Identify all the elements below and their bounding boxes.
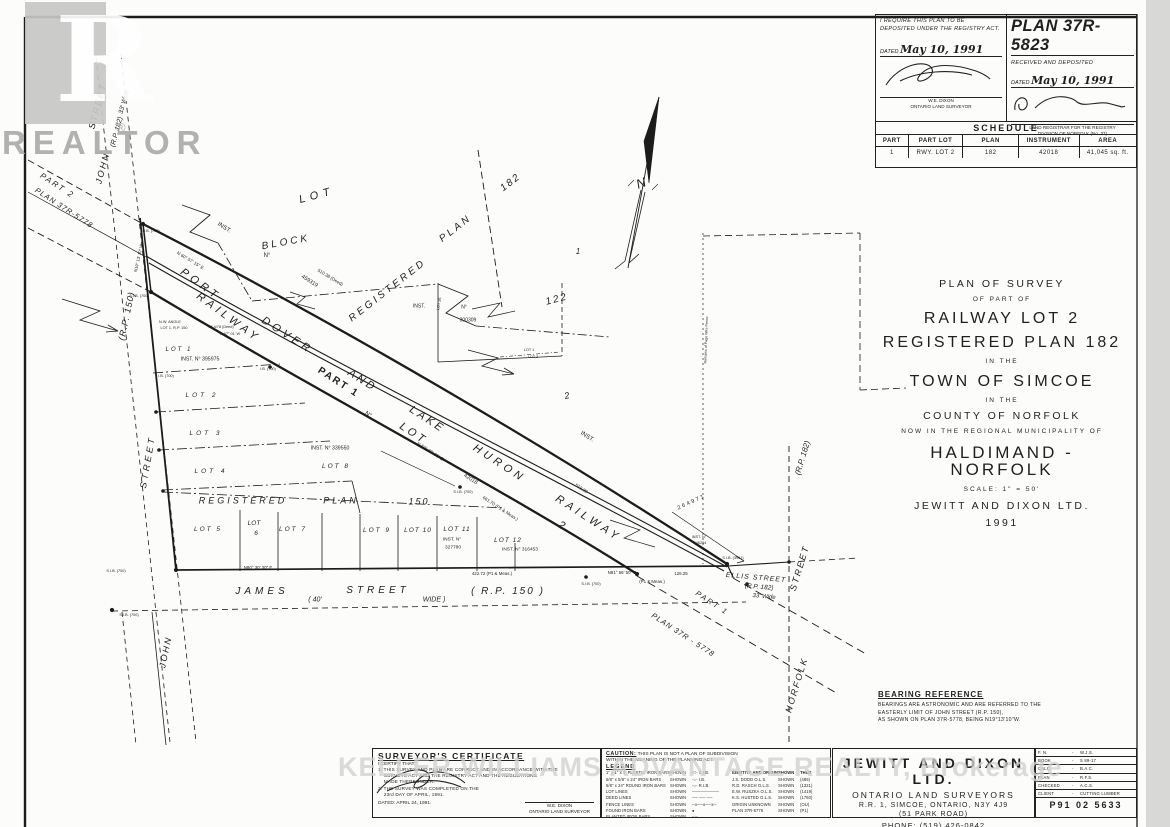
schedule-cell: 1	[876, 147, 909, 158]
map-label: INST. N° 316453	[502, 549, 538, 554]
company-address-line2: (51 PARK ROAD)	[833, 811, 1034, 818]
map-label: 300309	[460, 319, 477, 324]
map-label: N.W. ANGLE	[159, 321, 181, 325]
map-label: 246264	[694, 542, 707, 546]
schedule-cell: INSTRUMENT	[1019, 135, 1080, 147]
company-address-line1: R.R. 1, SIMCOE, ONTARIO, N3Y 4J9	[833, 802, 1034, 809]
map-label: LOT 5	[194, 527, 222, 534]
map-label: N81° 56' 50" E	[608, 571, 637, 575]
map-label: LOT 8	[322, 464, 350, 471]
survey-title-line: REGISTERED PLAN 182	[878, 335, 1126, 351]
map-label: I.B. (700)	[260, 368, 276, 372]
schedule-cell: PART	[876, 135, 909, 147]
info-cell: -	[1072, 766, 1080, 771]
survey-title-line: IN THE	[878, 359, 1126, 366]
map-label: INST.	[413, 305, 425, 310]
map-label: 6	[254, 531, 258, 538]
map-label: S.I.B. (3961)	[722, 557, 743, 561]
info-cell: -	[1072, 750, 1080, 755]
legend-cell: PLANTED IRON BARS	[606, 814, 670, 820]
company-subtitle: ONTARIO LAND SURVEYORS	[833, 790, 1034, 800]
survey-title-line: TOWN OF SIMCOE	[878, 374, 1126, 390]
schedule-cell: 42018	[1019, 147, 1080, 158]
survey-title-line: SCALE: 1" = 50'	[878, 487, 1126, 494]
schedule-data-row: 1RWY. LOT 21824201841,045 sq. ft.	[876, 147, 1136, 158]
dated-handwritten-date: May 10, 1991	[900, 43, 983, 56]
registrar-signature	[1011, 88, 1129, 118]
surveyor-role: ONTARIO LAND SURVEYOR	[880, 104, 1002, 110]
legend-row: PLANTED IRON BARSSHOWN-○-	[606, 814, 726, 820]
map-label: N80° 30' 30" E	[244, 566, 273, 570]
map-label: S.I.B. (700)	[119, 614, 138, 618]
bearing-reference-title: BEARING REFERENCE	[878, 690, 1128, 699]
legend-cell: SHOWN	[778, 808, 800, 814]
info-cell: A.C.S.	[1080, 783, 1134, 788]
schedule-table: SCHEDULE PARTPART LOTPLANINSTRUMENTAREA …	[876, 121, 1136, 158]
survey-title-line: RAILWAY LOT 2	[878, 311, 1126, 327]
schedule-cell: AREA	[1080, 135, 1136, 147]
received-deposited-label: RECEIVED AND DEPOSITED	[1011, 60, 1134, 68]
survey-title-line: PLAN OF SURVEY	[878, 279, 1126, 290]
info-cell: B.A.C.	[1080, 766, 1134, 771]
info-cell: R.F.S.	[1080, 775, 1134, 780]
surveyor-signature	[880, 57, 995, 91]
map-label: WIDE )	[423, 597, 446, 604]
dated-label: DATED	[880, 49, 899, 55]
map-label: INST. N° 395975	[181, 357, 220, 362]
map-label: LOT 2	[528, 356, 538, 360]
plan-number: PLAN 37R-5823	[1011, 17, 1134, 56]
map-label: STREET	[346, 586, 409, 596]
survey-title-block: PLAN OF SURVEYOF PART OFRAILWAY LOT 2REG…	[878, 272, 1126, 536]
schedule-cell: 41,045 sq. ft.	[1080, 147, 1136, 158]
info-row: CLIENT-CUTTING LUMBER	[1036, 790, 1136, 798]
info-cell: W.J.S.	[1080, 750, 1134, 755]
map-label: LOT 11	[443, 527, 470, 534]
map-label: LOT 7	[279, 527, 307, 534]
schedule-cell: PLAN	[963, 135, 1019, 147]
legend-cell: SHOWN	[670, 814, 692, 820]
scanned-survey-plan-page: PART 2PLAN 37R-5778JOHNSTREET(R.P. 182)3…	[0, 0, 1170, 827]
info-cell: -	[1072, 783, 1080, 788]
survey-title-line: JEWITT AND DIXON LTD.	[878, 501, 1126, 512]
info-cell: -	[1072, 791, 1080, 796]
map-label: LOT 2	[185, 393, 218, 400]
bearing-reference-line: AS SHOWN ON PLAN 37R-5778, BEING N19°13'…	[878, 717, 1128, 725]
map-label: S.I.B. (700)	[453, 491, 472, 495]
survey-title-line: OF PART OF	[878, 297, 1126, 304]
legend-cell: (P1)	[800, 808, 834, 814]
survey-title-line: NOW IN THE REGIONAL MUNICIPALITY OF	[878, 429, 1126, 436]
survey-title-line: IN THE	[878, 398, 1126, 405]
schedule-header-row: PARTPART LOTPLANINSTRUMENTAREA	[876, 135, 1136, 147]
legend-row: PLAN 37R-5778SHOWN(P1)	[732, 808, 834, 814]
schedule-cell: PART LOT	[909, 135, 964, 147]
survey-title-line: 1991	[878, 518, 1126, 529]
info-cell: CLIENT	[1038, 791, 1072, 796]
bearing-reference-block: BEARING REFERENCE BEARINGS ARE ASTRONOMI…	[878, 690, 1128, 725]
info-cell: -	[1072, 775, 1080, 780]
info-cell: CUTTING LUMBER	[1080, 791, 1134, 796]
map-label: 327780	[445, 547, 461, 552]
map-label: LOT 1	[166, 347, 193, 353]
schedule-title: SCHEDULE	[876, 122, 1136, 135]
survey-title-line: COUNTY OF NORFOLK	[878, 411, 1126, 422]
map-label: REGISTERED	[199, 497, 288, 506]
bearing-reference-text: BEARINGS ARE ASTRONOMIC AND ARE REFERRED…	[878, 702, 1128, 725]
company-phone: PHONE: (519) 426-0842	[833, 821, 1034, 827]
schedule-cell: 182	[963, 147, 1019, 158]
map-label: LOT 3	[189, 431, 222, 438]
map-label: 150	[408, 498, 429, 507]
deposit-title-block: I REQUIRE THIS PLAN TO BE DEPOSITED UNDE…	[875, 14, 1137, 168]
scan-edge-strip	[1146, 0, 1170, 827]
map-label: LOT 10	[404, 528, 432, 535]
map-label: N°	[461, 306, 467, 311]
bearing-reference-line: BEARINGS ARE ASTRONOMIC AND ARE REFERRED…	[878, 702, 1128, 710]
dated-handwritten-date: May 10, 1991	[1031, 74, 1114, 87]
bearing-reference-line: EASTERLY LIMIT OF JOHN STREET (R.P. 150)…	[878, 710, 1128, 718]
map-label: LOT 1	[524, 349, 534, 353]
schedule-cell: RWY. LOT 2	[909, 147, 964, 158]
registrar-cell: PLAN 37R-5823 RECEIVED AND DEPOSITED DAT…	[1007, 15, 1138, 121]
map-label: LOT 12	[494, 538, 522, 545]
dated-label: DATED	[1011, 80, 1030, 86]
map-label: S.I.B. (700)	[106, 570, 125, 574]
map-label: LOT 4	[194, 469, 227, 476]
map-label: (P1 & Meas.)	[639, 580, 665, 584]
info-cell: -	[1072, 758, 1080, 763]
map-label: INST. N°	[443, 539, 461, 544]
realtor-logo-letter: R	[55, 0, 153, 129]
map-label: ( R.P. 150 )	[471, 587, 545, 597]
map-label: ( 40'	[308, 597, 321, 604]
map-label: INST. N° 339550	[311, 446, 350, 451]
brokerage-watermark-text: KELLER WILLIAMS ADVANTAGE REALTY, Broker…	[338, 752, 1063, 783]
map-label: I.B. (700)	[158, 375, 174, 379]
map-label: S.I.B. (700)	[129, 295, 148, 299]
deposit-statement-line1: I REQUIRE THIS PLAN TO BE	[880, 18, 1002, 26]
map-label: LOT 1, R.P. 150	[161, 327, 188, 331]
legend-cell: -○-	[692, 814, 726, 820]
realtor-logo: R	[25, 2, 106, 124]
registered-trademark-icon: ®	[116, 120, 126, 135]
surveyor-deposit-cell: I REQUIRE THIS PLAN TO BE DEPOSITED UNDE…	[876, 15, 1007, 121]
map-label: 126.25	[674, 572, 687, 576]
map-label: N°	[264, 253, 271, 259]
deposit-statement-line2: DEPOSITED UNDER THE REGISTRY ACT.	[880, 26, 1002, 34]
map-label: S.I.B. (700)	[140, 230, 159, 234]
survey-title-line: HALDIMAND - NORFOLK	[878, 444, 1126, 478]
map-label: LOT	[248, 521, 261, 528]
map-label: LOT 9	[363, 528, 391, 535]
job-number: P91 02 5633	[1036, 798, 1136, 810]
realtor-watermark-text: REALTOR	[2, 124, 207, 162]
map-label: 1	[576, 248, 580, 256]
map-label: S.I.B. (700)	[581, 583, 600, 587]
map-label: JAMES	[235, 587, 288, 597]
map-label: N 67° 01' W	[220, 333, 240, 337]
map-label: PLAN	[323, 497, 359, 506]
certificate-surveyor-role: ONTARIO LAND SURVEYOR	[529, 809, 590, 815]
map-label: INST. N°	[692, 536, 707, 540]
map-label: 15.4/78 (Deed)	[208, 326, 233, 330]
legend-cell: PLAN 37R-5778	[732, 808, 778, 814]
info-cell: S 89-17	[1080, 758, 1134, 763]
map-label: 422.72 (P1 & Meas.)	[472, 572, 512, 576]
info-cell: CHECKED	[1038, 783, 1072, 788]
